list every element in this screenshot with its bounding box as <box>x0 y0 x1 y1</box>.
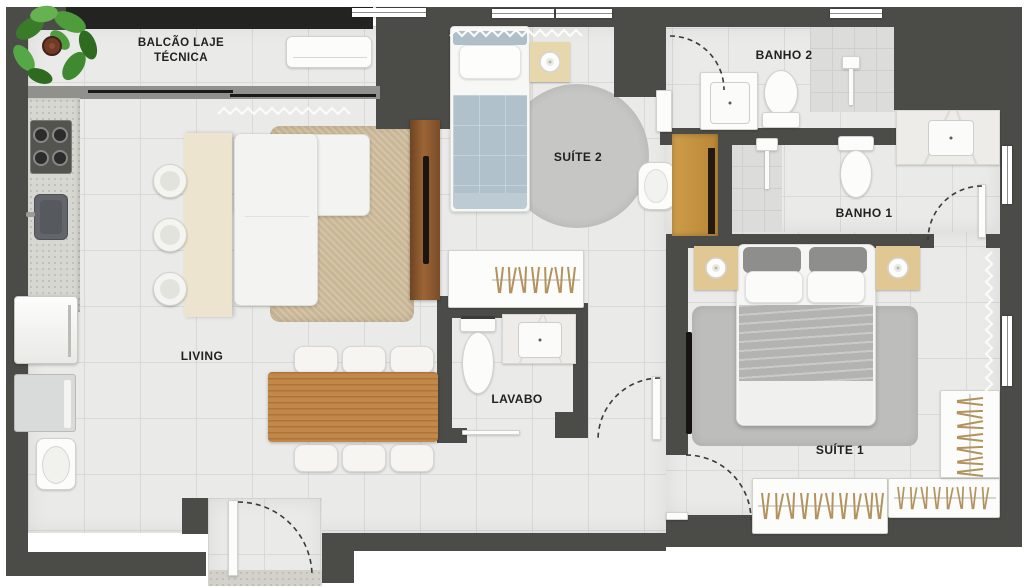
pillow <box>809 247 867 273</box>
room-label-banho2: BANHO 2 <box>756 48 813 64</box>
wall <box>986 234 1014 248</box>
window-icon <box>492 9 554 18</box>
kitchen-sink-icon <box>34 194 68 240</box>
wall-alcove <box>718 136 732 236</box>
single-bed-icon <box>450 26 530 212</box>
wall-entry-pier <box>182 498 208 534</box>
shower-pipe <box>849 69 853 105</box>
room-label-balcony-line1: BALCÃO LAJE <box>138 36 224 51</box>
toilet-icon <box>462 332 494 394</box>
basin <box>518 322 562 358</box>
basin <box>710 82 750 124</box>
toilet-tank <box>762 112 800 128</box>
door-leaf <box>462 430 520 435</box>
nightstand-icon <box>694 246 738 290</box>
toilet-tank <box>460 316 496 332</box>
wall-top-right-block <box>894 7 1022 110</box>
pillow <box>745 271 803 303</box>
shower-pipe <box>765 151 769 189</box>
wall <box>322 533 354 583</box>
window-icon <box>1002 146 1012 204</box>
room-label-banho1: BANHO 1 <box>836 206 893 222</box>
wall-hall-suite1 <box>666 240 688 455</box>
window-icon <box>352 8 426 17</box>
room-label-living: LIVING <box>181 349 223 365</box>
dining-chair-icon <box>342 346 386 374</box>
laundry-tank-icon <box>36 438 76 490</box>
wall <box>555 412 588 438</box>
wardrobe-icon <box>752 478 888 534</box>
pillow <box>807 271 865 303</box>
toilet-icon <box>764 70 798 116</box>
sliding-door-track <box>230 94 376 97</box>
room-label-suite1: SUÍTE 1 <box>816 443 864 459</box>
blanket <box>739 305 873 381</box>
wall-block <box>614 7 666 97</box>
sofa-chaise <box>234 134 318 306</box>
pillow <box>459 45 521 79</box>
door-leaf <box>652 376 661 440</box>
door-frame <box>666 512 688 520</box>
bar-stool-icon <box>153 272 187 306</box>
basin <box>928 120 974 156</box>
window-icon <box>830 9 882 18</box>
blanket <box>453 95 527 199</box>
shower-area-banho2 <box>810 26 896 112</box>
armchair-icon <box>638 162 676 210</box>
tv-icon <box>686 332 692 434</box>
dining-chair-icon <box>294 346 338 374</box>
wardrobe-icon <box>888 478 1000 518</box>
wardrobe-icon <box>940 390 1000 478</box>
double-bed-icon <box>736 244 876 426</box>
nightstand-icon <box>876 246 920 290</box>
dining-chair-icon <box>294 444 338 472</box>
kitchen-island <box>184 133 232 317</box>
shower-icon <box>756 138 778 151</box>
wall-balcony-ledge <box>63 7 373 29</box>
sliding-door-track <box>88 90 233 93</box>
wall-bottom-center <box>322 533 666 551</box>
tv-icon <box>423 156 429 264</box>
wardrobe-icon <box>448 250 584 308</box>
door-leaf <box>228 500 238 576</box>
dining-chair-icon <box>390 346 434 374</box>
entry-doormat <box>208 570 322 586</box>
balcony-bench-icon <box>286 36 372 68</box>
dining-table-icon <box>268 372 438 442</box>
dining-chair-icon <box>342 444 386 472</box>
cabinet <box>656 90 672 132</box>
room-label-balcony: BALCÃO LAJE TÉCNICA <box>138 36 224 66</box>
toilet-icon <box>840 150 872 198</box>
wall-lavabo-left <box>437 296 452 443</box>
wall-top-mass <box>376 7 452 129</box>
cooktop-icon <box>30 120 72 174</box>
room-label-suite2: SUÍTE 2 <box>554 150 602 166</box>
window-icon <box>556 9 612 18</box>
wall-bottom-left <box>6 552 206 576</box>
bar-stool-icon <box>153 218 187 252</box>
floor-plan: BALCÃO LAJE TÉCNICA LIVING SUÍTE 2 BANHO… <box>0 0 1024 588</box>
room-label-lavabo: LAVABO <box>491 392 542 408</box>
wall-left <box>6 7 28 576</box>
bar-stool-icon <box>153 164 187 198</box>
toilet-tank <box>838 136 874 151</box>
shower-icon <box>842 56 860 69</box>
room-label-balcony-line2: TÉCNICA <box>138 51 224 66</box>
nightstand-icon <box>530 42 570 82</box>
pillow <box>743 247 801 273</box>
dining-chair-icon <box>390 444 434 472</box>
refrigerator-icon <box>14 296 78 364</box>
window-icon <box>1002 316 1012 386</box>
door-leaf <box>978 184 986 238</box>
washing-machine-icon <box>14 374 76 432</box>
faucet-icon <box>26 212 35 217</box>
tv-icon <box>708 148 715 234</box>
